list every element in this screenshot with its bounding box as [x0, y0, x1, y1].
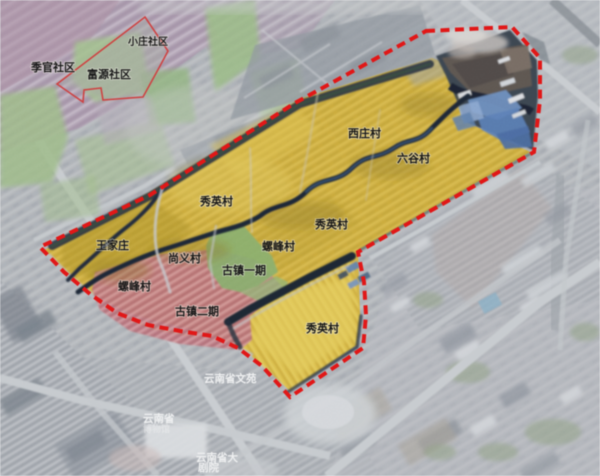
svg-text:博物馆: 博物馆: [143, 423, 170, 434]
svg-text:云南省文苑: 云南省文苑: [204, 372, 257, 385]
svg-text:剧院: 剧院: [198, 461, 219, 474]
